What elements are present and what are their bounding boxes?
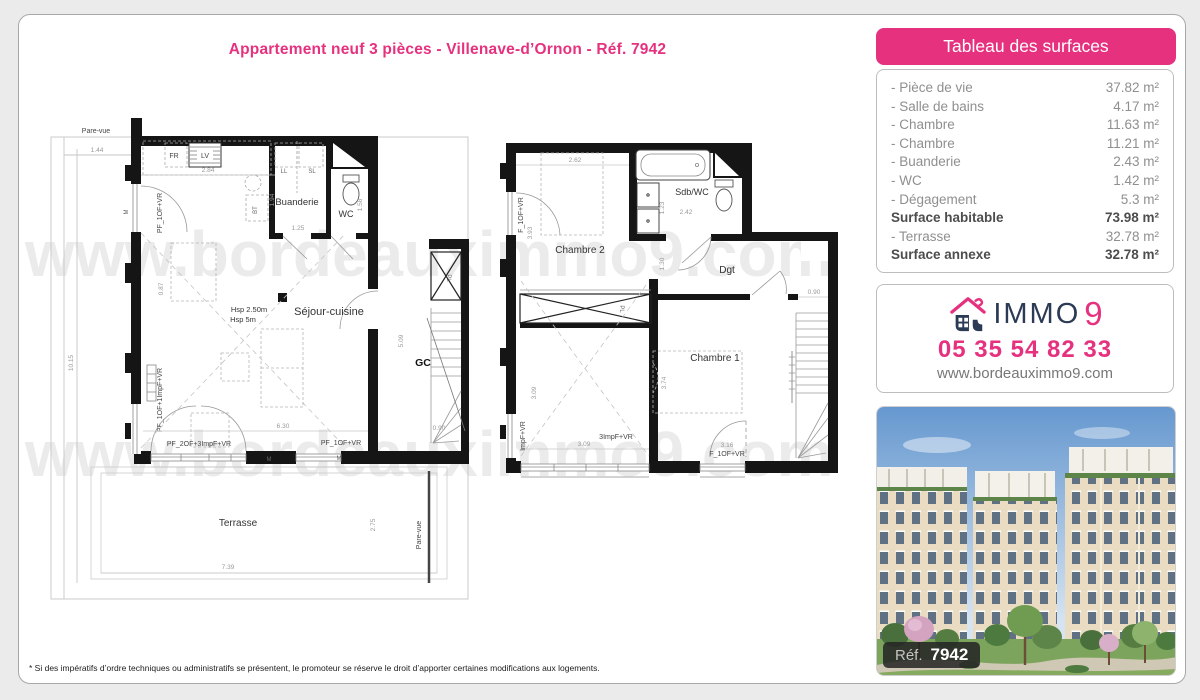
surface-row: - Terrasse32.78 m²	[891, 228, 1159, 247]
brand-immo: IMMO	[993, 298, 1080, 331]
reference-badge: Réf. 7942	[883, 642, 980, 668]
window-label: PF_2OF+3ImpF+VR	[167, 441, 231, 448]
agency-website[interactable]: www.bordeauximmo9.com	[877, 365, 1173, 382]
furniture	[171, 243, 303, 447]
dishwasher-label: LV	[201, 153, 209, 160]
toilet	[715, 180, 733, 211]
agency-phone[interactable]: 05 35 54 82 33	[877, 336, 1173, 364]
dim-10-15: 10.15	[68, 354, 75, 371]
doors	[141, 186, 378, 451]
surface-row: - Salle de bains4.17 m²	[891, 98, 1159, 117]
room-label-buanderie: Buanderie	[275, 197, 318, 208]
window-label: PF_1OF+VR	[157, 193, 164, 233]
stairs	[789, 313, 828, 458]
ref-value: 7942	[931, 645, 969, 665]
agency-card: IMMO9 05 35 54 82 33 www.bordeauximmo9.c…	[876, 284, 1174, 393]
window-m-mark: M	[337, 456, 342, 462]
dim-1-58: 1.58	[357, 198, 364, 211]
surface-row: - Buanderie2.43 m²	[891, 153, 1159, 172]
dim-1-30: 1.30	[659, 257, 666, 270]
ceiling-height-1: Hsp 2.50m	[231, 305, 267, 314]
dim-0-87: 0.87	[158, 282, 165, 295]
window-label: F_1OF+VR	[518, 197, 525, 233]
window-m-mark: M	[124, 210, 130, 215]
room-label-dgt: Dgt	[719, 265, 735, 276]
window-label: PF_1OF+1ImpF+VR	[157, 368, 164, 432]
window-label: PF_1OF+VR	[321, 440, 361, 447]
surfaces-table: - Pièce de vie37.82 m² - Salle de bains4…	[876, 69, 1174, 273]
dim-2-84: 2.84	[202, 167, 215, 174]
window-label: F_1OF+VR	[709, 451, 745, 458]
room-label-sdbwc: Sdb/WC	[675, 187, 709, 197]
building-photo: Réf. 7942	[876, 406, 1176, 676]
ceiling-height-2: Hsp 5m	[230, 315, 256, 324]
walls	[500, 143, 838, 473]
room-label-chambre1: Chambre 1	[690, 353, 740, 364]
pare-vue-label: Pare-vue	[82, 128, 111, 135]
window-label: ImpF+VR	[520, 421, 527, 451]
building-illustration	[877, 407, 1176, 676]
dryer-label: SL	[308, 169, 316, 175]
walls	[125, 118, 469, 464]
agency-logo: IMMO9	[877, 295, 1173, 333]
closet-label: PL	[445, 274, 451, 282]
double-height-cross	[521, 281, 649, 456]
terrace-outline	[91, 467, 447, 579]
flyer-card: www.bordeauximmo9.com www.bordeauximmo9.…	[18, 14, 1186, 684]
window-m-mark: M	[267, 457, 272, 463]
pare-vue-label: Pare-vue	[416, 521, 423, 550]
laundry-machines	[275, 141, 323, 193]
dim-0-90: 0.90	[808, 289, 821, 296]
dim-1-44: 1.44	[91, 147, 104, 154]
dim-3-74: 3.74	[661, 376, 668, 389]
wall-notch	[801, 241, 828, 261]
floor-plan-level-1: Pare-vue 1.44 10.15	[31, 113, 481, 613]
surface-row-total: Surface annexe32.78 m²	[891, 246, 1159, 265]
gc-label: GC	[415, 357, 431, 369]
sinks	[637, 183, 659, 233]
dim-3-16: 3.16	[721, 442, 734, 449]
closet-label: PL	[618, 305, 624, 313]
page-title: Appartement neuf 3 pièces - Villenave-d’…	[19, 41, 876, 59]
bathtub	[636, 150, 710, 180]
room-label-terrasse: Terrasse	[219, 518, 258, 529]
surface-row: - Dégagement5.3 m²	[891, 191, 1159, 210]
dim-3-93: 3.93	[527, 226, 534, 239]
water-heater-label: BT	[253, 206, 259, 214]
dim-2-62: 2.62	[569, 157, 582, 164]
floor-plan-level-2: F_1OF+VR ImpF+VR Sdb/WC 2.62 1.23 2.42 3…	[496, 123, 851, 483]
dim-2-42: 2.42	[680, 209, 693, 216]
house-icon	[947, 295, 989, 333]
stairs	[427, 308, 465, 443]
surfaces-header: Tableau des surfaces	[876, 28, 1176, 65]
surface-row: - Chambre11.21 m²	[891, 135, 1159, 154]
washer-label: LL	[281, 169, 288, 175]
ref-label: Réf.	[895, 647, 923, 664]
dim-5-09: 5.09	[398, 334, 405, 347]
dim-3-09-v: 3.09	[531, 386, 538, 399]
dim-1-94: 1.94	[269, 193, 276, 206]
terrace-boundary	[51, 137, 468, 599]
dim-1-23: 1.23	[659, 201, 666, 214]
disclaimer-text: * Si des impératifs d’ordre techniques o…	[29, 663, 600, 673]
brand-9: 9	[1084, 295, 1102, 333]
dim-6-30: 6.30	[277, 423, 290, 430]
surface-row: - Chambre11.63 m²	[891, 116, 1159, 135]
fridge-label: FR	[169, 153, 178, 160]
window-label: 3ImpF+VR	[599, 434, 633, 441]
surface-row: - WC1.42 m²	[891, 172, 1159, 191]
dim-1-25: 1.25	[292, 225, 305, 232]
room-label-sejour: Séjour-cuisine	[294, 306, 364, 318]
ladder-symbol	[147, 365, 156, 401]
double-height-cross	[141, 233, 346, 448]
room-label-wc: WC	[339, 209, 354, 219]
surface-row-total: Surface habitable73.98 m²	[891, 209, 1159, 228]
dim-2-75: 2.75	[370, 518, 377, 531]
dim-3-09-h: 3.09	[578, 441, 591, 448]
room-label-chambre2: Chambre 2	[555, 245, 605, 256]
dim-0-90: 0.90	[433, 425, 446, 432]
dim-7-39: 7.39	[222, 564, 235, 571]
surface-row: - Pièce de vie37.82 m²	[891, 79, 1159, 98]
